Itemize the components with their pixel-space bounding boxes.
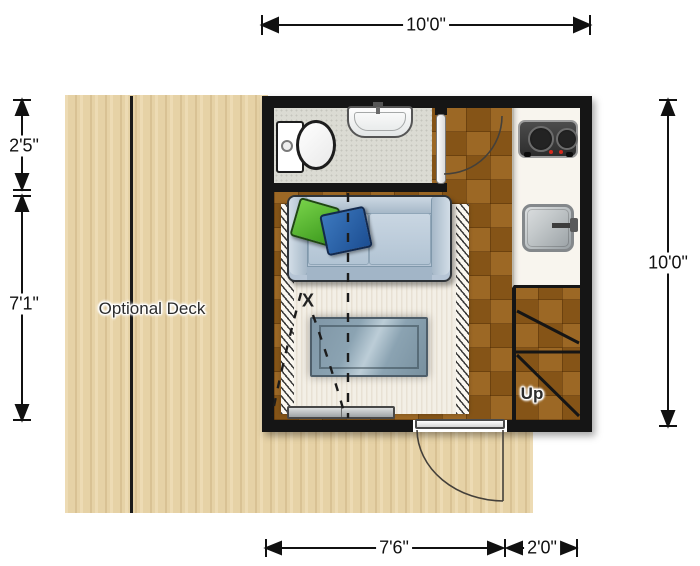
coffee-table-glass [319,325,419,369]
dimension-label-entry-width: 2'0" [524,538,560,559]
dimension-label-right-height: 10'0" [645,253,691,274]
dimension-label-bathroom-depth: 2'5" [6,136,42,157]
coffee-table-icon [310,317,428,377]
entry-door [415,419,505,429]
bathroom-door [436,114,446,184]
stove-burner-icon [528,126,554,152]
toilet-icon [296,120,336,170]
toilet-flush-button-icon [281,140,293,152]
stair-wall [512,288,516,420]
stairs-up-label: Up [521,384,544,404]
sofa-cushion [369,213,431,265]
kitchen-sink-icon [522,204,574,252]
floor-mark-label: X [302,291,314,312]
sofa-armrest [431,197,450,275]
rug-fringe [456,204,469,414]
stove-burner-icon [556,128,578,150]
stove-indicator-light [559,150,563,154]
stove-knob [566,152,573,157]
bathroom-south-wall [274,183,447,192]
bathroom-faucet-stem [376,107,380,114]
dimension-label-top-width: 10'0" [403,15,449,36]
kitchen-sink-basin [527,209,569,247]
kitchen-faucet-handle [570,218,578,232]
floor-plan: Optional Deck Up X 10'0" 2'5" 7'1" 10'0"… [0,0,700,566]
media-console-divider [341,408,342,417]
stove-indicator-light [549,150,553,154]
media-console-icon [287,406,395,419]
dimension-label-living-width: 7'6" [376,538,412,559]
bathroom-sink-icon [347,106,413,138]
bathroom-sink-basin [354,112,406,131]
sofa-front-edge [307,266,432,280]
dimension-label-living-depth: 7'1" [6,294,42,315]
optional-deck-label: Optional Deck [99,299,206,319]
stove-knob [524,152,531,157]
